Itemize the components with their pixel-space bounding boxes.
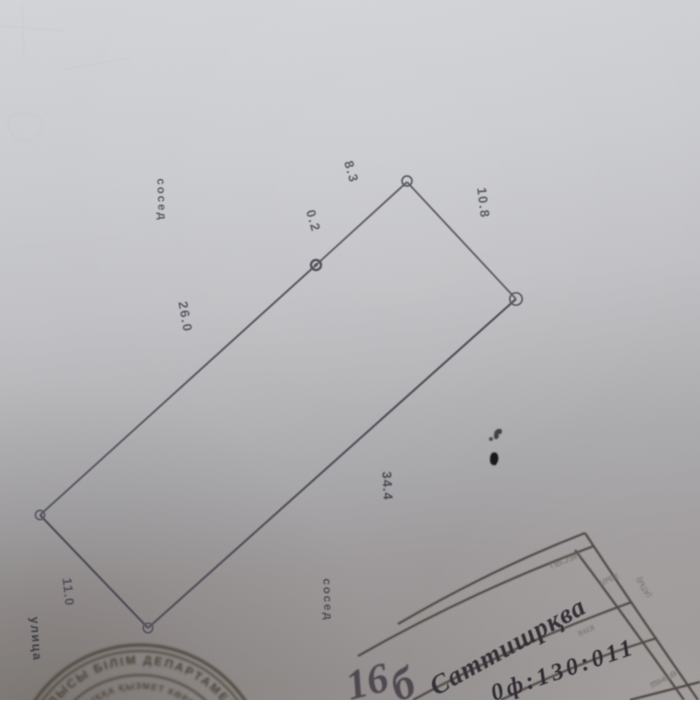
svg-text:11.0: 11.0 — [60, 577, 78, 607]
svg-text:34.4: 34.4 — [379, 471, 396, 501]
svg-text:сосед: сосед — [154, 178, 168, 222]
svg-text:сосед: сосед — [320, 578, 334, 622]
